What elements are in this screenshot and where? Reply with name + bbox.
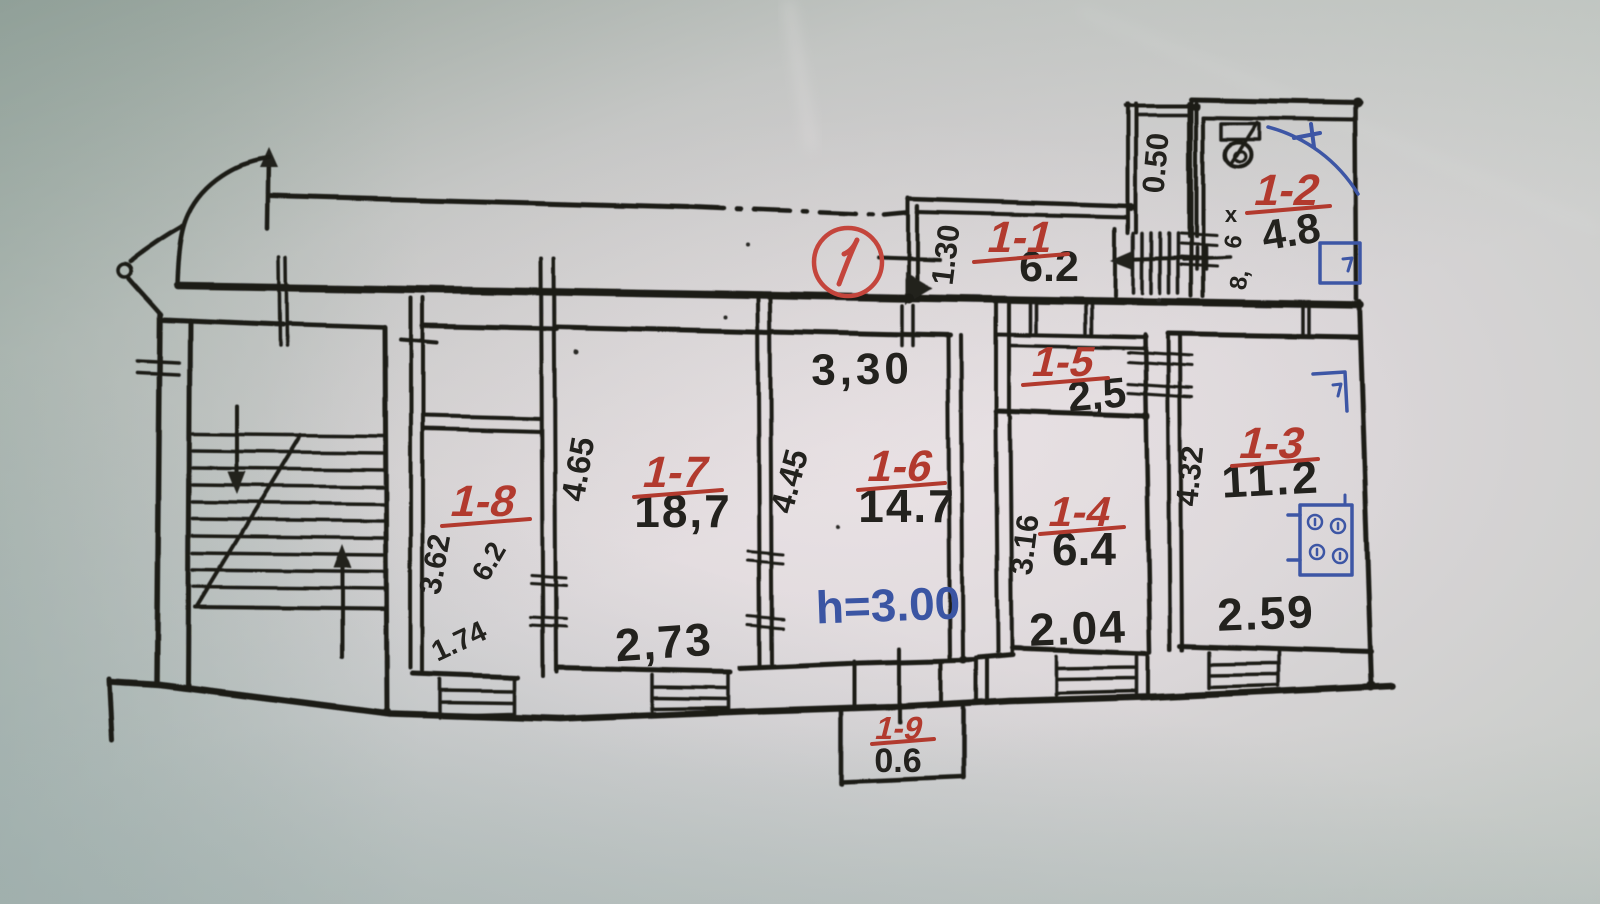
svg-text:3,30: 3,30 — [811, 344, 913, 395]
svg-text:2.59: 2.59 — [1216, 585, 1315, 640]
svg-text:3.16: 3.16 — [1004, 513, 1046, 577]
svg-text:2.04: 2.04 — [1028, 600, 1127, 655]
svg-text:1.30: 1.30 — [925, 223, 967, 287]
svg-text:0.50: 0.50 — [1135, 132, 1175, 195]
svg-text:h=3.00: h=3.00 — [815, 576, 961, 633]
svg-text:4.32: 4.32 — [1169, 444, 1210, 508]
svg-text:2,73: 2,73 — [613, 613, 714, 672]
svg-text:x: x — [1225, 202, 1238, 227]
svg-text:0.6: 0.6 — [874, 742, 921, 780]
